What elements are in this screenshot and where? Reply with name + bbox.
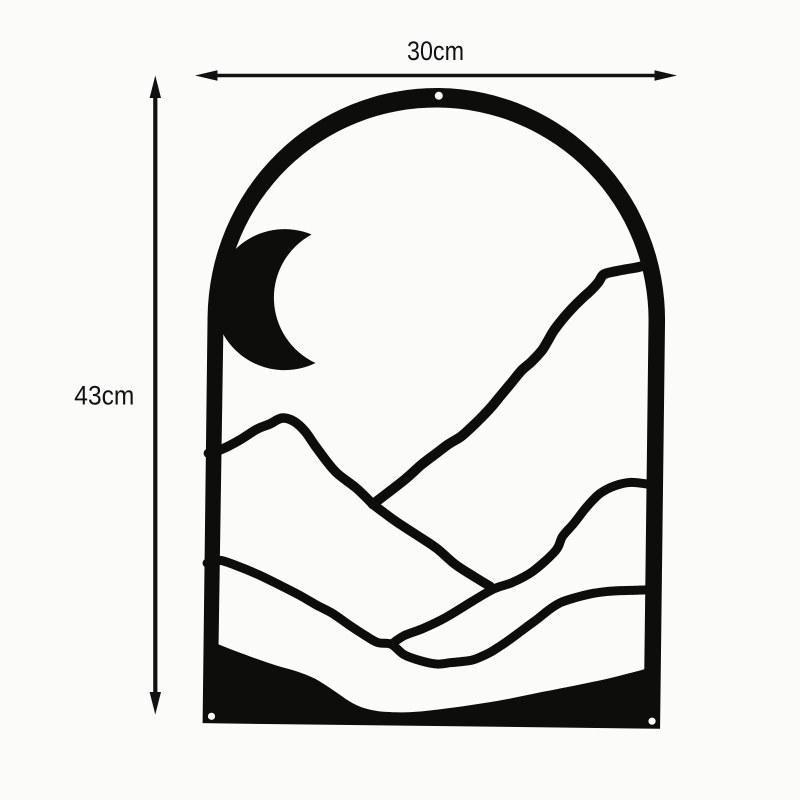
svg-text:43cm: 43cm bbox=[74, 381, 134, 411]
svg-text:30cm: 30cm bbox=[407, 36, 464, 66]
